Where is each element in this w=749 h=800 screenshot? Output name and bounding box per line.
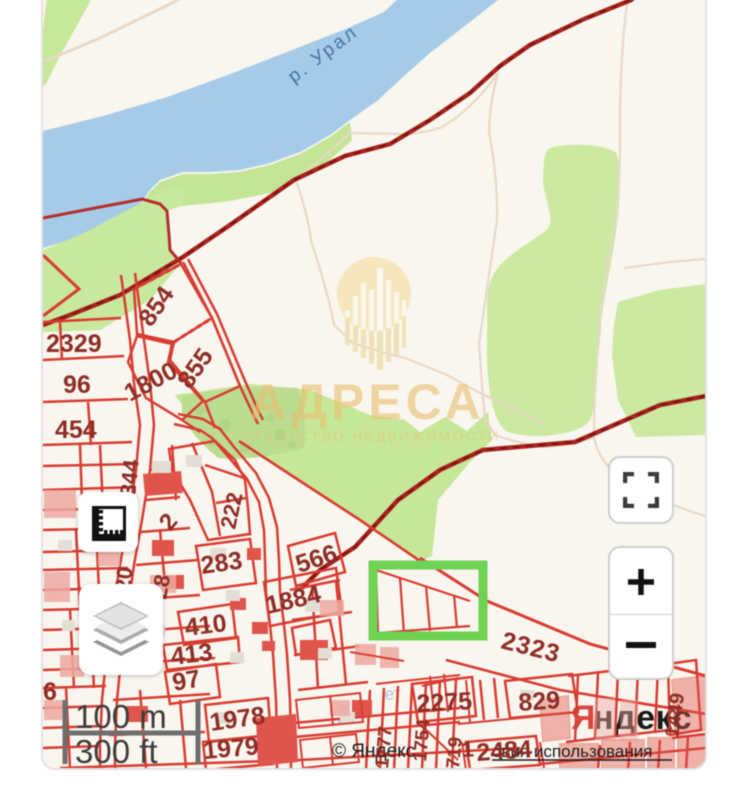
- svg-text:300 ft: 300 ft: [75, 733, 158, 770]
- svg-text:1754: 1754: [410, 718, 435, 762]
- svg-text:283: 283: [199, 546, 244, 580]
- svg-text:100 m: 100 m: [75, 698, 167, 735]
- svg-text:829: 829: [517, 686, 561, 717]
- svg-text:АДРЕСА: АДРЕСА: [249, 374, 484, 430]
- svg-text:2329: 2329: [46, 330, 102, 358]
- svg-text:2484: 2484: [475, 735, 533, 767]
- svg-text:410: 410: [183, 609, 228, 642]
- svg-text:ет: ет: [384, 684, 402, 704]
- svg-text:1777: 1777: [372, 725, 397, 768]
- svg-text:2275: 2275: [416, 687, 473, 718]
- svg-text:454: 454: [55, 416, 97, 444]
- svg-text:АГЕНТСТВО НЕДВИЖИМОСТИ: АГЕНТСТВО НЕДВИЖИМОСТИ: [243, 428, 500, 444]
- svg-text:1: 1: [461, 736, 475, 762]
- svg-text:96: 96: [63, 371, 91, 399]
